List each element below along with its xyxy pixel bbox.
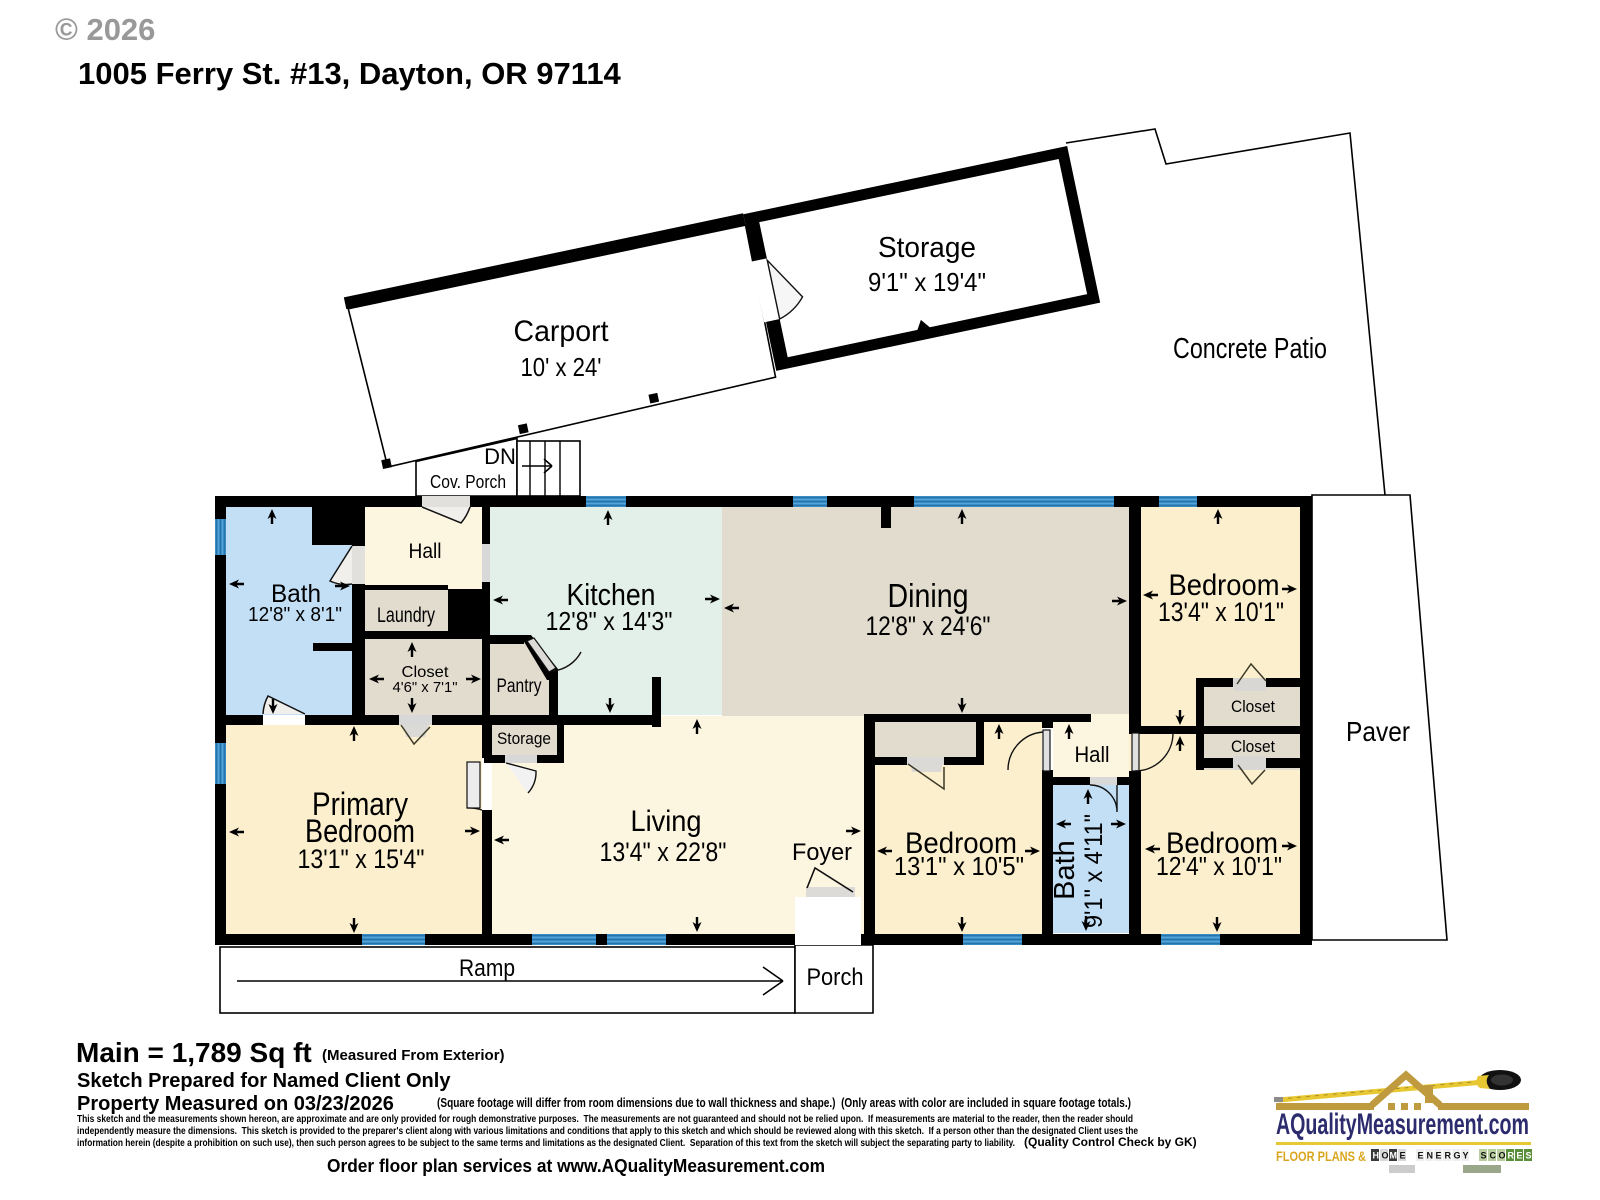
svg-text:(Measured From Exterior): (Measured From Exterior) <box>322 1047 505 1064</box>
svg-text:12'8" x 24'6": 12'8" x 24'6" <box>866 611 991 641</box>
svg-text:R: R <box>1445 1151 1452 1161</box>
svg-text:C: C <box>1490 1151 1497 1161</box>
svg-text:E: E <box>1517 1151 1523 1161</box>
svg-text:Storage: Storage <box>497 729 551 748</box>
svg-text:FLOOR PLANS &: FLOOR PLANS & <box>1276 1148 1366 1164</box>
svg-text:Hall: Hall <box>409 539 442 563</box>
svg-text:S: S <box>1526 1151 1532 1161</box>
svg-text:Paver: Paver <box>1346 716 1410 747</box>
svg-text:E: E <box>1400 1151 1406 1161</box>
svg-text:G: G <box>1454 1151 1461 1161</box>
svg-text:Foyer: Foyer <box>792 839 852 866</box>
svg-text:Bath: Bath <box>1049 840 1081 900</box>
svg-text:independently measure the dime: independently measure the dimensions. Th… <box>77 1126 1138 1137</box>
svg-text:Closet: Closet <box>1231 697 1275 716</box>
svg-text:12'8" x 8'1": 12'8" x 8'1" <box>248 604 342 626</box>
svg-text:O: O <box>1382 1151 1389 1161</box>
svg-text:13'1" x 10'5": 13'1" x 10'5" <box>894 851 1024 881</box>
svg-text:DN: DN <box>484 444 516 469</box>
svg-text:Storage: Storage <box>878 232 976 264</box>
svg-text:Closet: Closet <box>1231 737 1275 756</box>
svg-text:9'1" x 19'4": 9'1" x 19'4" <box>868 267 986 297</box>
svg-text:12'8" x 14'3": 12'8" x 14'3" <box>546 606 673 636</box>
svg-text:Ramp: Ramp <box>459 955 515 982</box>
svg-text:N: N <box>1427 1151 1434 1161</box>
svg-text:Cov. Porch: Cov. Porch <box>430 472 506 492</box>
svg-text:Order floor plan services at w: Order floor plan services at www.AQualit… <box>327 1156 825 1176</box>
svg-text:S: S <box>1481 1151 1487 1161</box>
svg-text:13'4" x 10'1": 13'4" x 10'1" <box>1158 597 1284 627</box>
svg-text:Main = 1,789 Sq ft: Main = 1,789 Sq ft <box>76 1037 312 1068</box>
svg-text:© 2026: © 2026 <box>55 12 155 47</box>
svg-text:10' x 24': 10' x 24' <box>521 352 602 382</box>
svg-text:E: E <box>1418 1151 1424 1161</box>
svg-text:(Quality Control Check by GK): (Quality Control Check by GK) <box>1024 1135 1197 1149</box>
svg-text:4'6" x 7'1": 4'6" x 7'1" <box>393 679 458 696</box>
svg-text:(Square footage will differ fr: (Square footage will differ from room di… <box>437 1096 1131 1110</box>
svg-text:M: M <box>1390 1151 1398 1161</box>
svg-text:Porch: Porch <box>807 964 864 991</box>
svg-text:Y: Y <box>1463 1151 1469 1161</box>
svg-text:Hall: Hall <box>1075 742 1110 767</box>
svg-text:Property Measured on 03/23/202: Property Measured on 03/23/2026 <box>77 1093 394 1115</box>
svg-text:Dining: Dining <box>888 577 969 614</box>
svg-text:12'4" x 10'1": 12'4" x 10'1" <box>1156 851 1282 881</box>
svg-text:This sketch and the measuremen: This sketch and the measurements shown h… <box>77 1114 1133 1125</box>
svg-text:9'1" x 4'11": 9'1" x 4'11" <box>1080 814 1108 928</box>
svg-text:information herein (despite a: information herein (despite a prohibitio… <box>77 1138 1015 1149</box>
svg-text:R: R <box>1508 1151 1515 1161</box>
svg-text:O: O <box>1499 1151 1506 1161</box>
svg-text:E: E <box>1436 1151 1442 1161</box>
svg-text:AQualityMeasurement.com: AQualityMeasurement.com <box>1276 1108 1529 1141</box>
svg-text:Concrete Patio: Concrete Patio <box>1173 333 1327 365</box>
svg-text:1005 Ferry St. #13, Dayton, OR: 1005 Ferry St. #13, Dayton, OR 97114 <box>78 56 622 91</box>
svg-text:13'4" x 22'8": 13'4" x 22'8" <box>600 837 727 867</box>
svg-text:Carport: Carport <box>514 315 610 348</box>
svg-text:Laundry: Laundry <box>377 604 435 627</box>
svg-text:Pantry: Pantry <box>497 676 542 697</box>
svg-text:Sketch Prepared for Named Clie: Sketch Prepared for Named Client Only <box>77 1070 451 1092</box>
svg-text:Living: Living <box>631 805 702 838</box>
svg-text:H: H <box>1373 1151 1380 1161</box>
svg-text:13'1" x 15'4": 13'1" x 15'4" <box>298 844 425 874</box>
